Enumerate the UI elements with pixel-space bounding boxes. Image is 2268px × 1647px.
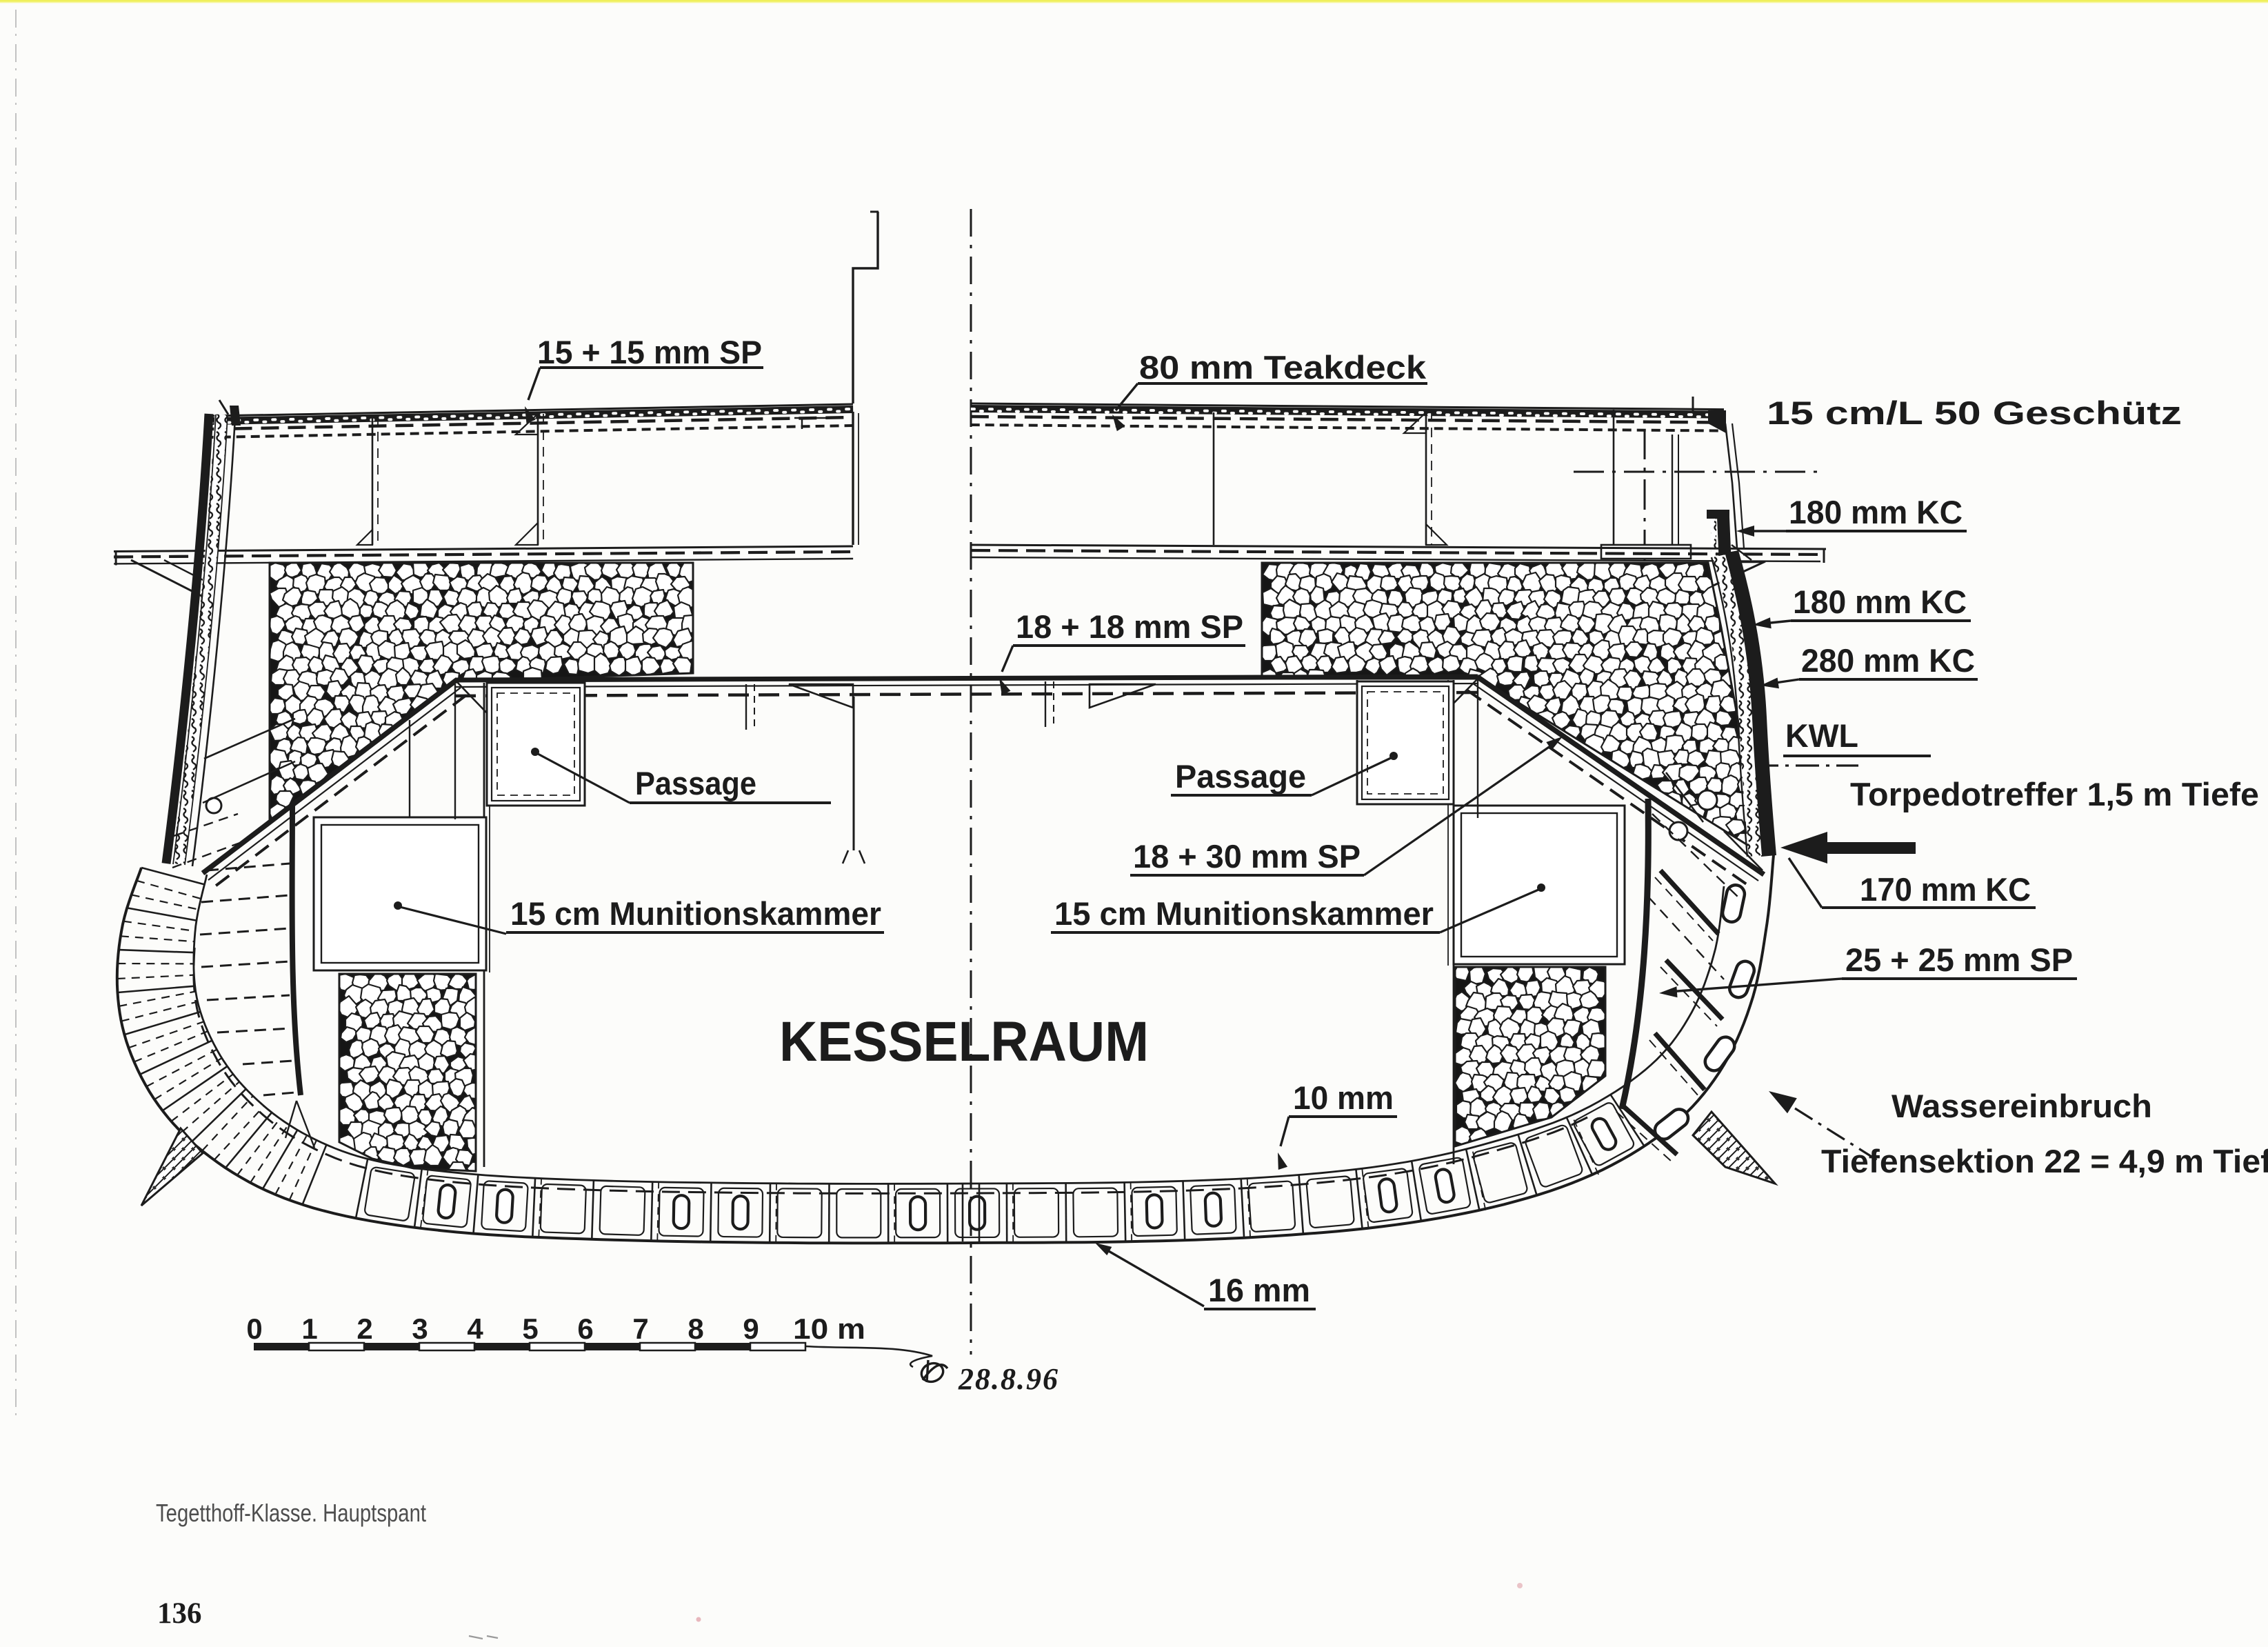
svg-text:25 + 25 mm SP: 25 + 25 mm SP: [1845, 941, 2073, 978]
svg-text:10 mm: 10 mm: [1293, 1079, 1394, 1116]
svg-text:8: 8: [688, 1312, 703, 1345]
svg-text:16 mm: 16 mm: [1208, 1272, 1310, 1308]
svg-text:170 mm KC: 170 mm KC: [1860, 871, 2031, 908]
svg-text:15 cm/L 50 Geschütz: 15 cm/L 50 Geschütz: [1767, 395, 2182, 431]
svg-text:Torpedotreffer 1,5 m Tiefe: Torpedotreffer 1,5 m Tiefe: [1850, 776, 2259, 812]
svg-text:180 mm KC: 180 mm KC: [1789, 494, 1963, 530]
svg-text:0: 0: [246, 1312, 262, 1345]
svg-text:136: 136: [157, 1597, 202, 1630]
svg-text:Tiefensektion 22 = 4,9 m Tief: Tiefensektion 22 = 4,9 m Tiefe: [1821, 1143, 2268, 1179]
svg-text:7: 7: [632, 1312, 648, 1345]
svg-text:15 cm Munitionskammer: 15 cm Munitionskammer: [1054, 895, 1434, 932]
svg-text:9: 9: [743, 1312, 759, 1345]
svg-text:3: 3: [412, 1312, 428, 1345]
svg-text:Passage: Passage: [635, 765, 756, 801]
svg-text:28.8.96: 28.8.96: [958, 1362, 1059, 1396]
svg-text:6: 6: [577, 1312, 593, 1345]
svg-text:18 + 18 mm SP: 18 + 18 mm SP: [1016, 608, 1243, 645]
svg-text:1: 1: [301, 1312, 317, 1345]
svg-text:4: 4: [467, 1312, 483, 1345]
svg-text:Passage: Passage: [1175, 758, 1306, 795]
svg-text:280 mm KC: 280 mm KC: [1801, 642, 1975, 679]
svg-text:80 mm Teakdeck: 80 mm Teakdeck: [1139, 349, 1427, 386]
svg-text:15 cm Munitionskammer: 15 cm Munitionskammer: [510, 895, 881, 932]
svg-text:180 mm KC: 180 mm KC: [1793, 583, 1967, 620]
svg-text:18 + 30 mm SP: 18 + 30 mm SP: [1133, 838, 1361, 875]
svg-text:KWL: KWL: [1785, 717, 1858, 754]
svg-text:5: 5: [522, 1312, 538, 1345]
svg-text:Tegetthoff-Klasse. Hauptspant: Tegetthoff-Klasse. Hauptspant: [156, 1499, 426, 1527]
svg-text:10 m: 10 m: [793, 1312, 865, 1345]
svg-text:KESSELRAUM: KESSELRAUM: [779, 1010, 1149, 1073]
svg-text:Wassereinbruch: Wassereinbruch: [1891, 1088, 2152, 1124]
svg-text:15 + 15 mm SP: 15 + 15 mm SP: [537, 334, 762, 370]
svg-text:2: 2: [357, 1312, 372, 1345]
